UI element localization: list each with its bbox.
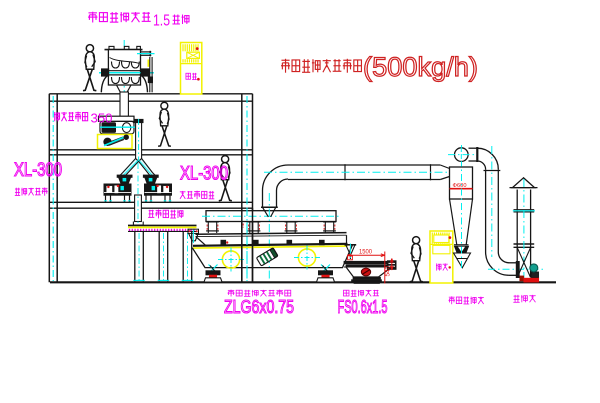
svg-text:(500kg/h): (500kg/h) <box>363 52 478 82</box>
svg-text:Φ600: Φ600 <box>453 183 467 189</box>
svg-text:ZLG6x0.75: ZLG6x0.75 <box>224 296 294 317</box>
svg-text:XL-300: XL-300 <box>14 160 62 181</box>
svg-text:350: 350 <box>91 112 113 126</box>
svg-text:XL-300: XL-300 <box>180 164 228 185</box>
svg-text:1.5: 1.5 <box>153 13 170 30</box>
svg-text:1500: 1500 <box>359 248 372 255</box>
svg-text:FS0.6x1.5: FS0.6x1.5 <box>338 296 388 317</box>
svg-text:540: 540 <box>384 265 391 276</box>
